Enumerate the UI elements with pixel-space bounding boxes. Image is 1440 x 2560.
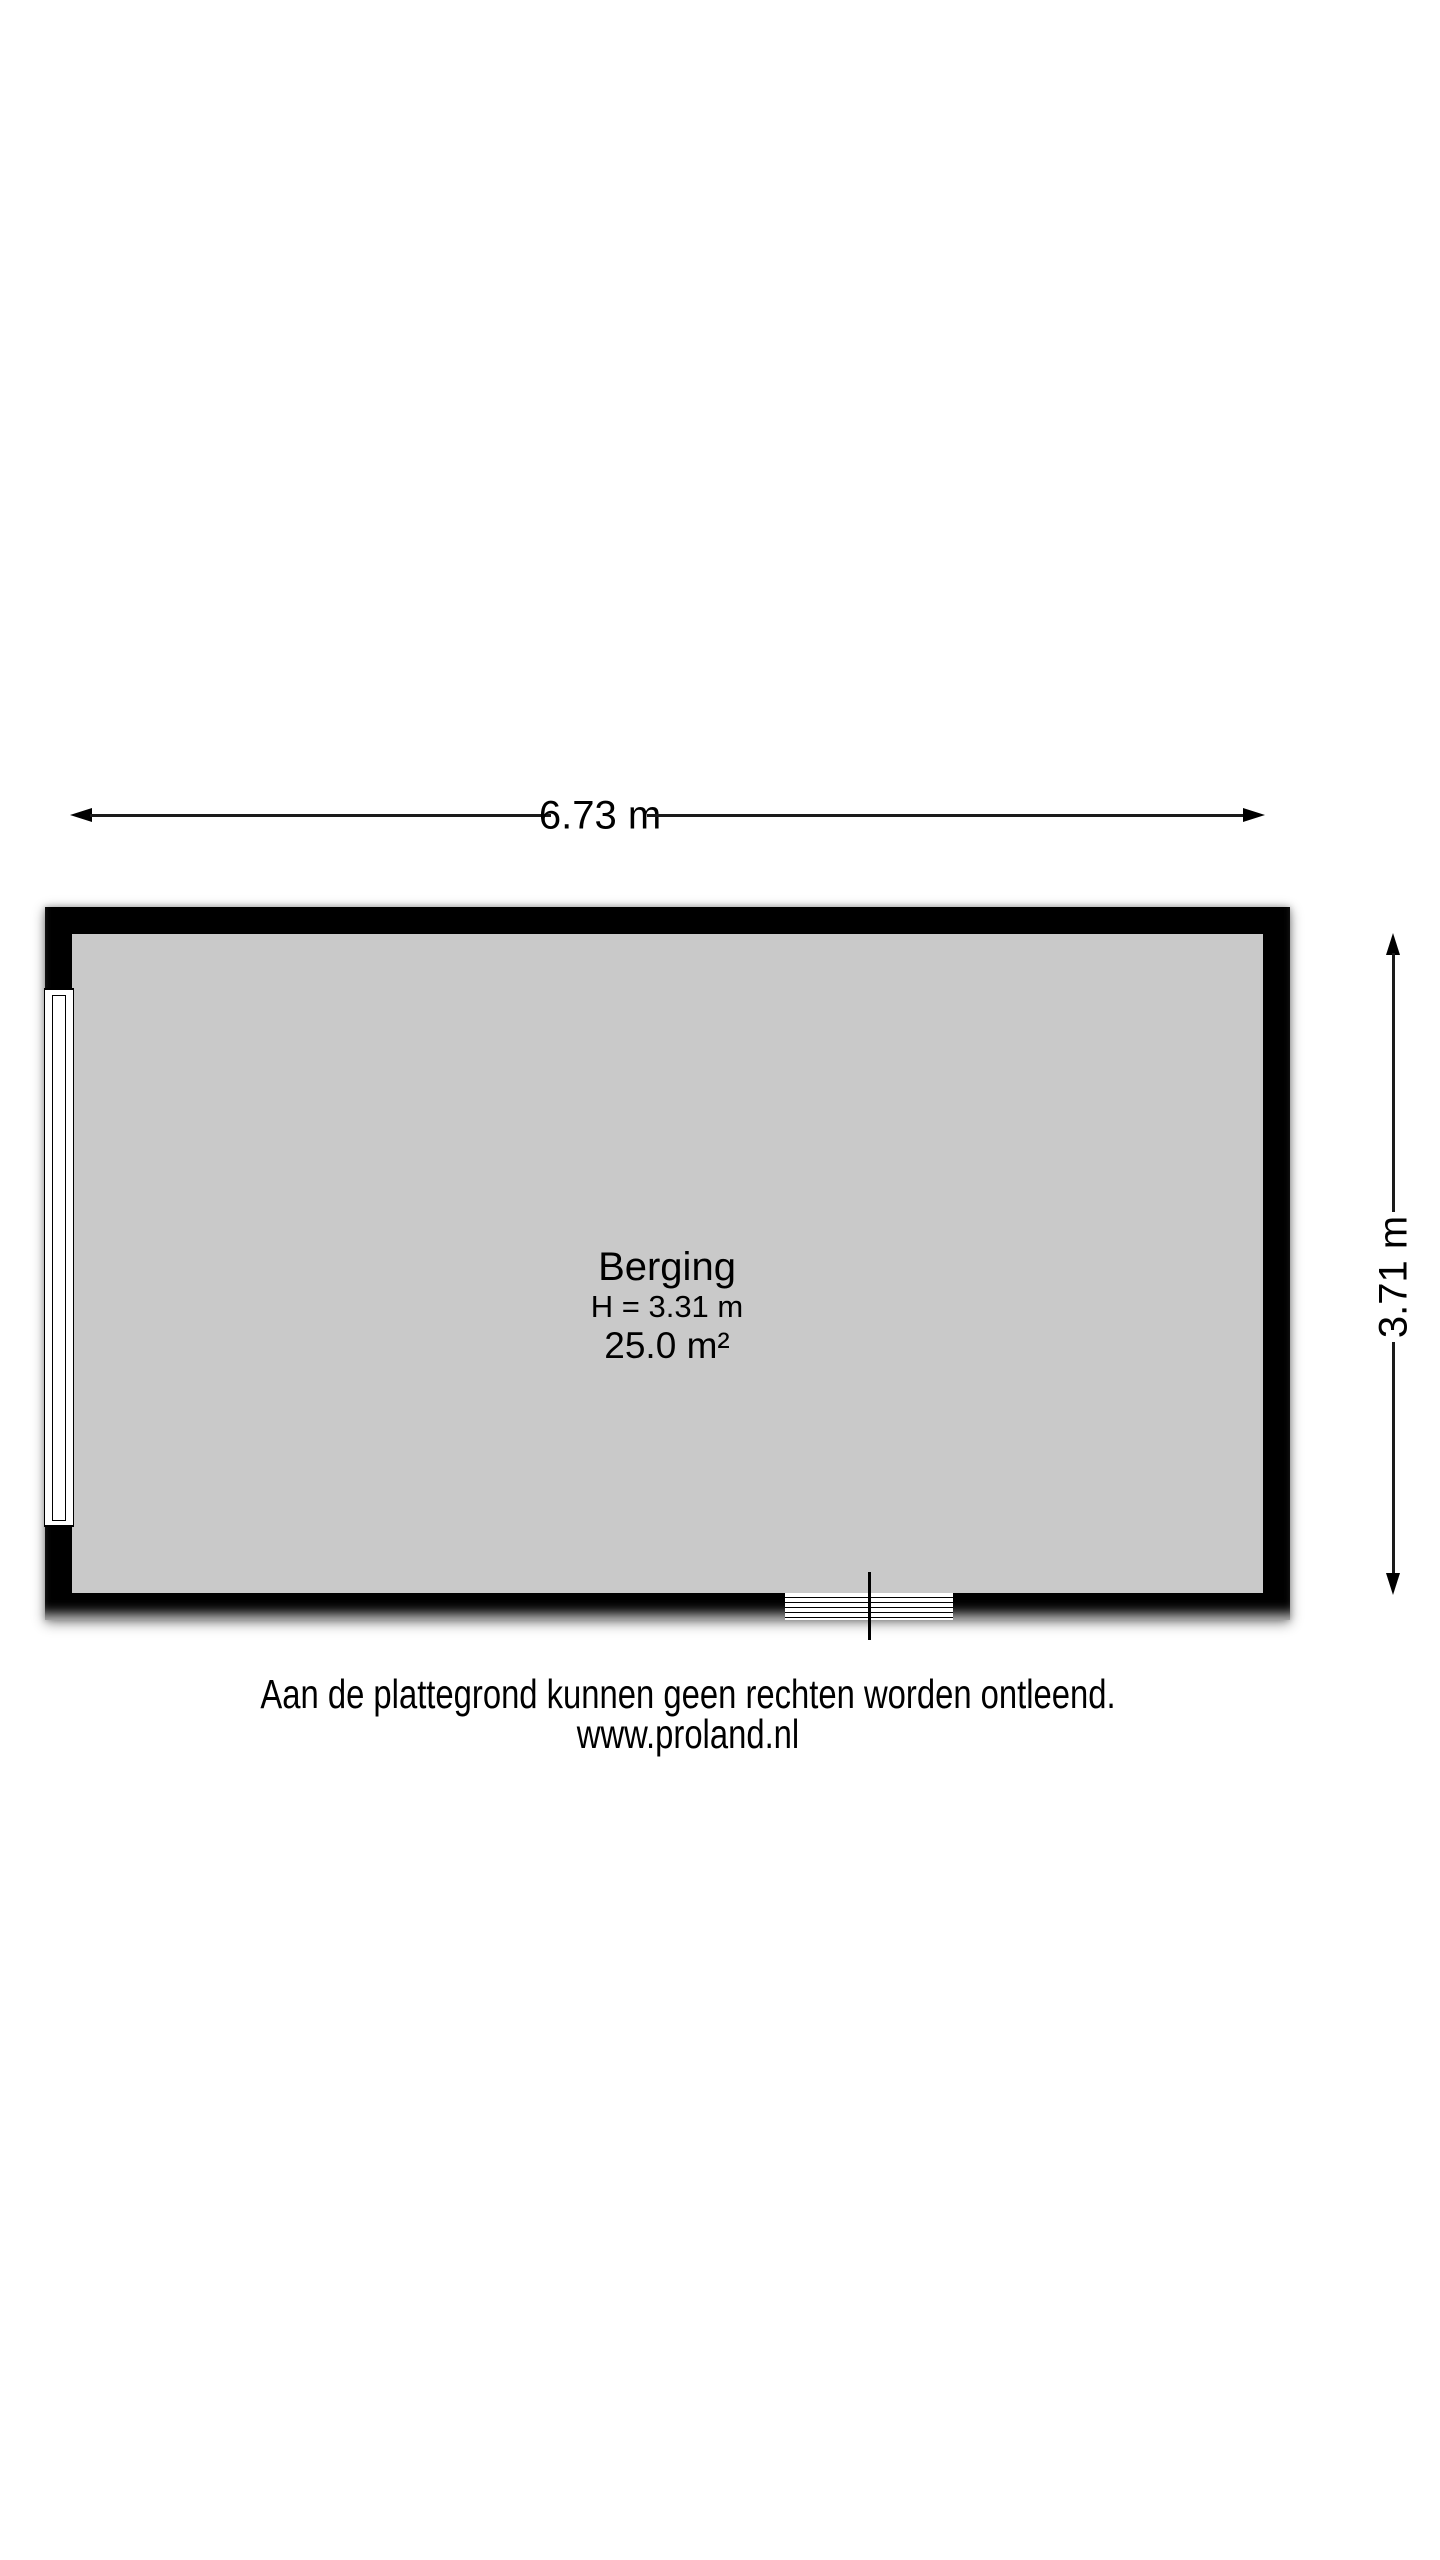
window-glazing-line	[52, 995, 66, 1521]
dimension-arrow-up-icon	[1386, 933, 1400, 955]
disclaimer-text: Aan de plattegrond kunnen geen rechten w…	[138, 1674, 1239, 1714]
dimension-arrow-down-icon	[1386, 1573, 1400, 1595]
footer: Aan de plattegrond kunnen geen rechten w…	[138, 1674, 1239, 1754]
room-name: Berging	[591, 1245, 744, 1289]
room-label: Berging H = 3.31 m 25.0 m²	[591, 1245, 744, 1367]
room-ceiling-height: H = 3.31 m	[591, 1289, 744, 1325]
room-area: 25.0 m²	[591, 1325, 744, 1367]
width-dimension-label: 6.73 m	[539, 794, 661, 839]
website-text: www.proland.nl	[138, 1714, 1239, 1754]
dimension-line-top-left	[90, 814, 551, 817]
dimension-line-right-top	[1392, 953, 1395, 1212]
dimension-arrow-right-icon	[1243, 808, 1265, 822]
dimension-line-top-right	[647, 814, 1247, 817]
floorplan-page: 6.73 m Berging H = 3.31 m 25.0 m² 3.71 m…	[0, 0, 1440, 2560]
height-dimension-label: 3.71 m	[1372, 1216, 1417, 1338]
dimension-line-right-bottom	[1392, 1342, 1395, 1577]
door-center-mark	[868, 1572, 871, 1640]
dimension-arrow-left-icon	[70, 808, 92, 822]
